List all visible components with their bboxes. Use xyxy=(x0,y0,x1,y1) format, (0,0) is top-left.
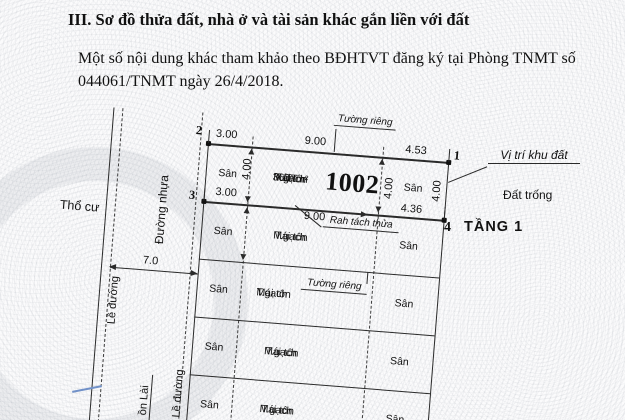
yard-label: Sân xyxy=(390,354,410,368)
yard-label: Sân xyxy=(399,239,419,253)
yard-cell: Sân xyxy=(364,330,434,393)
dim-top-left: 3.00 xyxy=(206,127,247,142)
street-name-fragment: ồn Lài xyxy=(136,374,153,420)
roof-label: Mái tôn xyxy=(259,402,294,418)
section-title: III. Sơ đồ thửa đất, nhà ở và tài sản kh… xyxy=(68,10,608,30)
yard-label: Sân xyxy=(394,297,414,311)
yard-label: Sân xyxy=(403,181,423,195)
yard-label: Sân xyxy=(200,398,220,412)
roof-label: Mái tôn xyxy=(264,345,299,361)
vacant-land-label: Đất trống xyxy=(503,188,552,202)
asphalt-road-label: Đường nhựa xyxy=(151,164,172,255)
dim-top-mid: 9.00 xyxy=(295,134,336,149)
building-cell: T.gạch Mái tôn xyxy=(238,262,373,330)
note-line-2: 044061/TNMT ngày 26/4/2018. xyxy=(78,70,625,93)
blue-guilloche-line xyxy=(72,385,102,393)
yard-label: Sân xyxy=(218,166,238,180)
building-cell: T.gạch Mái tôn xyxy=(243,204,378,272)
roof-label: Mái tôn xyxy=(273,171,308,187)
private-wall-label-top: Tường riêng xyxy=(334,113,397,131)
yard-label: Sân xyxy=(204,340,224,354)
note-paragraph: Một số nội dung khác tham khảo theo BĐHT… xyxy=(78,47,625,93)
point-label-3: 3 xyxy=(188,188,195,203)
yard-label: Sân xyxy=(213,224,233,238)
yard-cell: Sân xyxy=(185,374,233,420)
point-label-2: 2 xyxy=(195,123,202,138)
roof-label: Mái tôn xyxy=(273,229,308,245)
private-wall-leader-top xyxy=(334,129,337,152)
certificate-page: III. Sơ đồ thửa đất, nhà ở và tài sản kh… xyxy=(0,0,625,420)
dim-arrow-right xyxy=(191,270,198,277)
yard-cell: Sân xyxy=(360,388,430,420)
dim-arrow-left xyxy=(109,264,116,271)
point-label-1: 1 xyxy=(453,148,460,163)
road-width-value: 7.0 xyxy=(128,253,173,268)
yard-cell: Sân xyxy=(373,215,443,278)
point-label-4: 4 xyxy=(444,220,451,236)
road-shoulder-label-right: Lề đường xyxy=(170,365,186,420)
note-line-1: Một số nội dung khác tham khảo theo BĐHT… xyxy=(78,47,625,70)
yard-cell: Sân xyxy=(369,272,439,335)
roof-label: Mái tôn xyxy=(256,286,291,302)
yard-cell: Sân xyxy=(203,143,251,204)
residential-land-label: Thổ cư xyxy=(50,197,109,216)
yard-cell: Sân xyxy=(199,201,247,262)
yard-label: Sân xyxy=(385,412,405,420)
yard-cell: Sân xyxy=(194,259,242,320)
road-width-dim-line xyxy=(110,267,198,275)
yard-cell: Sân xyxy=(190,316,238,377)
dim-top-right: 4.53 xyxy=(396,143,437,158)
plot-number: 1002 xyxy=(320,166,384,201)
site-location-label: Vị trí khu đất xyxy=(488,148,580,164)
building-cell: T.gạch Mái tôn xyxy=(234,320,369,388)
floor-label: TẦNG 1 xyxy=(464,219,523,235)
yard-cell: Sân xyxy=(378,157,448,220)
yard-label: Sân xyxy=(209,282,229,296)
road-shoulder-label-left: Lề đường xyxy=(105,272,121,329)
site-location-leader xyxy=(448,166,487,183)
